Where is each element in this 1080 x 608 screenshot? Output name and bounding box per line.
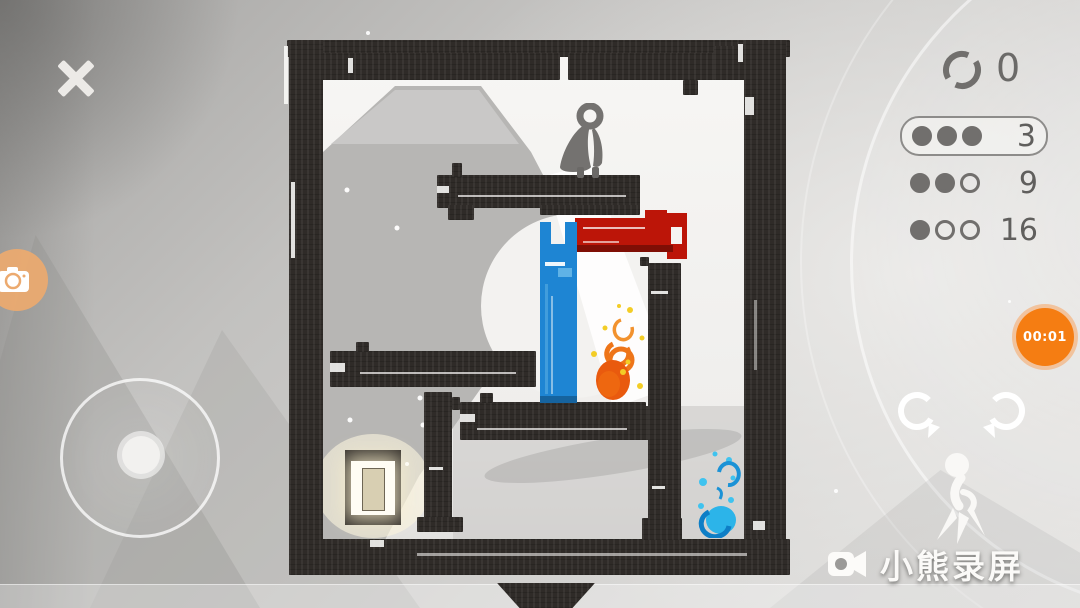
cw-arrowhead — [928, 423, 940, 438]
platform-lower-tab — [480, 393, 493, 403]
wall-sketch-line — [753, 521, 765, 530]
goal-row-2-stars: 9 — [900, 163, 1048, 203]
pillar-small-foot — [417, 517, 463, 532]
door-panel — [362, 468, 385, 511]
pillar-sketch-line — [429, 467, 443, 470]
camera-icon — [0, 267, 30, 293]
joystick-knob[interactable] — [122, 436, 160, 474]
platform-sketch-notch — [330, 363, 345, 372]
wall-sketch-line — [738, 44, 743, 62]
video-camera-icon — [826, 547, 868, 581]
platform-sketch-notch — [460, 414, 475, 422]
timer-value: 00:01 — [1023, 330, 1067, 345]
platform-lower — [460, 402, 646, 440]
recording-timer[interactable]: 00:01 — [1016, 308, 1074, 366]
platform-top-tab — [452, 163, 462, 177]
wall-sketch-line — [370, 540, 384, 547]
pillar-sketch-line — [651, 291, 668, 294]
water-elemental — [693, 448, 743, 538]
wall-sketch-line — [745, 97, 754, 115]
close-button[interactable] — [54, 56, 98, 100]
platform-middle — [330, 351, 536, 387]
wall-sketch-line — [417, 553, 747, 556]
platform-sketch-line — [360, 372, 516, 374]
blue-block[interactable] — [540, 222, 577, 403]
rotate-right-button[interactable] — [981, 389, 1031, 439]
goal-moves: 16 — [1000, 213, 1038, 248]
star-dots — [912, 126, 982, 146]
pillar-small — [424, 392, 452, 532]
wall-top-beam-left — [300, 53, 560, 80]
pillar-right-foot — [642, 518, 682, 540]
platform-sketch-line — [458, 195, 626, 197]
wall-stub — [683, 80, 698, 95]
background-star — [1008, 300, 1011, 303]
star-dots — [910, 220, 980, 240]
wall-sketch-line — [284, 46, 288, 104]
star-dots — [910, 173, 980, 193]
pillar-sketch-line — [652, 486, 665, 489]
platform-top-foot — [448, 205, 474, 220]
game-screen: 0 3 9 16 00:01 — [0, 0, 1080, 608]
joystick[interactable] — [60, 378, 220, 538]
rotate-left-button[interactable] — [892, 389, 942, 439]
platform-top — [437, 175, 640, 208]
wall-right — [744, 40, 786, 575]
hooded-character — [545, 103, 625, 179]
restart-count: 0 — [996, 46, 1040, 90]
watermark-label: 小熊录屏 — [880, 540, 1024, 588]
background-star — [366, 31, 370, 35]
platform-sketch-line — [477, 428, 627, 430]
pillar-right — [648, 263, 681, 540]
wall-sketch-line — [348, 58, 353, 73]
wall-bottom — [289, 539, 790, 575]
exit-door — [345, 450, 401, 525]
wall-sketch-line — [291, 182, 295, 258]
recorder-mascot[interactable] — [927, 452, 997, 548]
platform-middle-tab — [356, 342, 369, 352]
platform-sketch-notch — [437, 186, 449, 193]
ccw-arrowhead — [983, 423, 995, 438]
wall-left — [289, 40, 323, 575]
background-star — [834, 489, 838, 493]
red-block[interactable] — [575, 210, 687, 260]
watermark: 小熊录屏 — [826, 540, 1024, 588]
restart-icon[interactable] — [941, 49, 983, 91]
goal-row-3-stars: 3 — [900, 116, 1048, 156]
wall-sketch-line — [754, 300, 757, 370]
goal-moves: 9 — [1019, 166, 1038, 201]
pillar-small-tab — [452, 397, 460, 410]
goal-row-1-star: 16 — [900, 210, 1048, 250]
goal-moves: 3 — [1017, 119, 1036, 154]
fire-elemental — [585, 298, 649, 404]
